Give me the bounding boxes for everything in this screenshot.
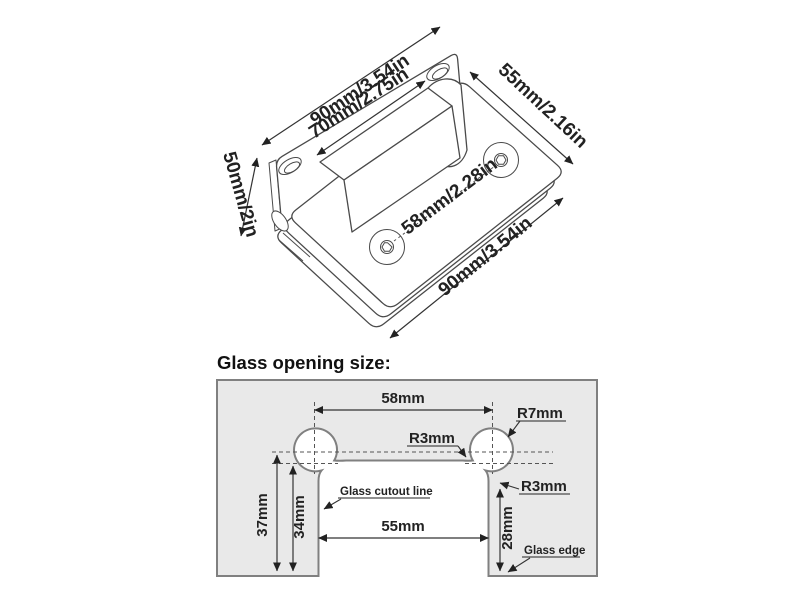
glass-cutout-line-label: Glass cutout line [340, 486, 433, 498]
dimension-plate-height: 50mm/2in [218, 149, 262, 239]
hinge-isometric-view: 90mm/3.54in 55mm/2.16in 70mm/2.75in 50mm… [218, 27, 592, 338]
depth-to-center-label: 37mm [254, 493, 271, 536]
hinge-technical-drawing: 90mm/3.54in 55mm/2.16in 70mm/2.75in 50mm… [0, 0, 800, 600]
cutout-width-label: 55mm [381, 518, 424, 535]
slot-fillet-label: R3mm [409, 430, 455, 447]
hole-spacing-label: 58mm [381, 390, 424, 407]
clamp-screw-bottom [370, 230, 405, 265]
edge-depth-label: 28mm [499, 506, 516, 549]
dimension-cutout-width: 55mm [319, 518, 489, 538]
glass-opening-diagram: Glass opening size: 58mm R7mm R3mm [217, 352, 597, 576]
corner-fillet-label: R3mm [521, 478, 567, 495]
callout-glass-cutout-line: Glass cutout line [324, 486, 433, 509]
product-dimension-image: 90mm/3.54in 55mm/2.16in 70mm/2.75in 50mm… [0, 0, 800, 600]
glass-edge-label: Glass edge [524, 545, 585, 557]
lobe-radius-label: R7mm [517, 405, 563, 422]
cutout-depth-label: 34mm [291, 495, 308, 538]
glass-opening-heading: Glass opening size: [217, 352, 391, 373]
